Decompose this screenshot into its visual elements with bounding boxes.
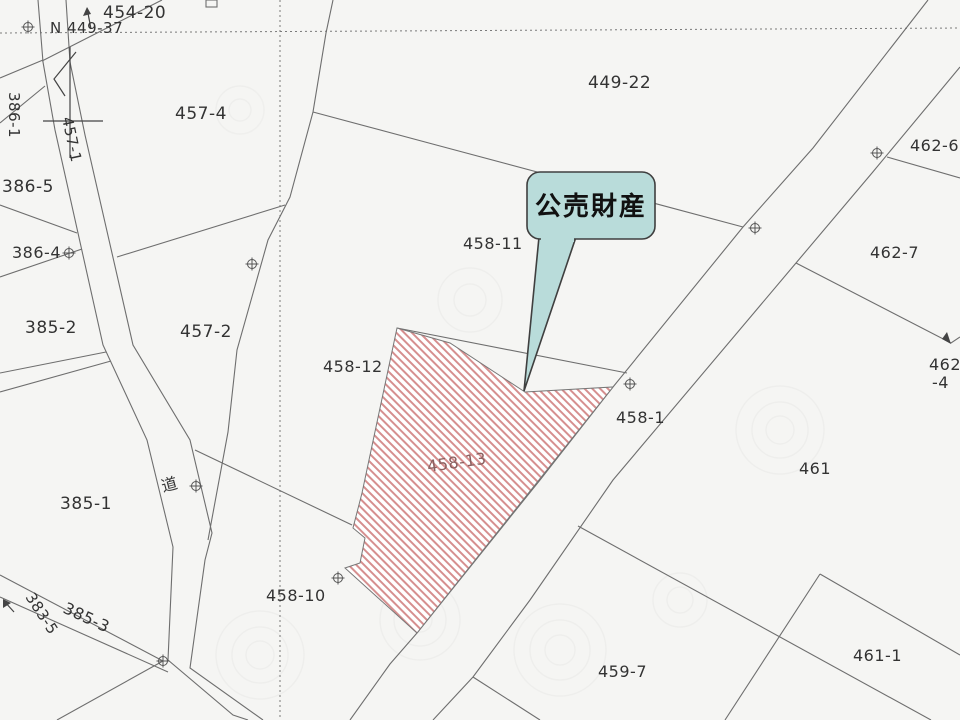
parcel-label-461: 461 bbox=[799, 459, 831, 478]
parcel-label-459-7: 459-7 bbox=[598, 662, 647, 681]
parcel-label-462-4-line2: -4 bbox=[932, 373, 949, 392]
parcel-label-462-6: 462-6 bbox=[910, 136, 959, 155]
parcel-label-458-10: 458-10 bbox=[266, 586, 326, 605]
map-background bbox=[0, 0, 960, 720]
parcel-label-458-11: 458-11 bbox=[463, 234, 523, 253]
parcel-label-458-12: 458-12 bbox=[323, 357, 383, 376]
parcel-label-461-1: 461-1 bbox=[853, 646, 902, 665]
parcel-label-385-2: 385-2 bbox=[25, 318, 77, 338]
parcel-label-386-5: 386-5 bbox=[2, 177, 54, 197]
parcel-label-386-4: 386-4 bbox=[12, 243, 61, 262]
callout-seam-cover bbox=[541, 233, 574, 242]
parcel-label-385-1: 385-1 bbox=[60, 494, 112, 514]
parcel-label-449-37: N 449-37 bbox=[50, 19, 123, 37]
parcel-label-462-7: 462-7 bbox=[870, 243, 919, 262]
parcel-label-458-1: 458-1 bbox=[616, 408, 665, 427]
parcel-label-462-4-line1: 462 bbox=[929, 355, 960, 374]
parcel-label-449-22: 449-22 bbox=[588, 73, 651, 93]
map-canvas: 454-20 N 449-37 449-22 457-4 457-1 462-6… bbox=[0, 0, 960, 720]
callout-label: 公売財産 bbox=[535, 191, 647, 222]
parcel-label-457-2: 457-2 bbox=[180, 322, 232, 342]
cadastral-map: 454-20 N 449-37 449-22 457-4 457-1 462-6… bbox=[0, 0, 960, 720]
parcel-label-457-4: 457-4 bbox=[175, 104, 227, 124]
parcel-label-386-1: 386-1 bbox=[5, 92, 23, 138]
